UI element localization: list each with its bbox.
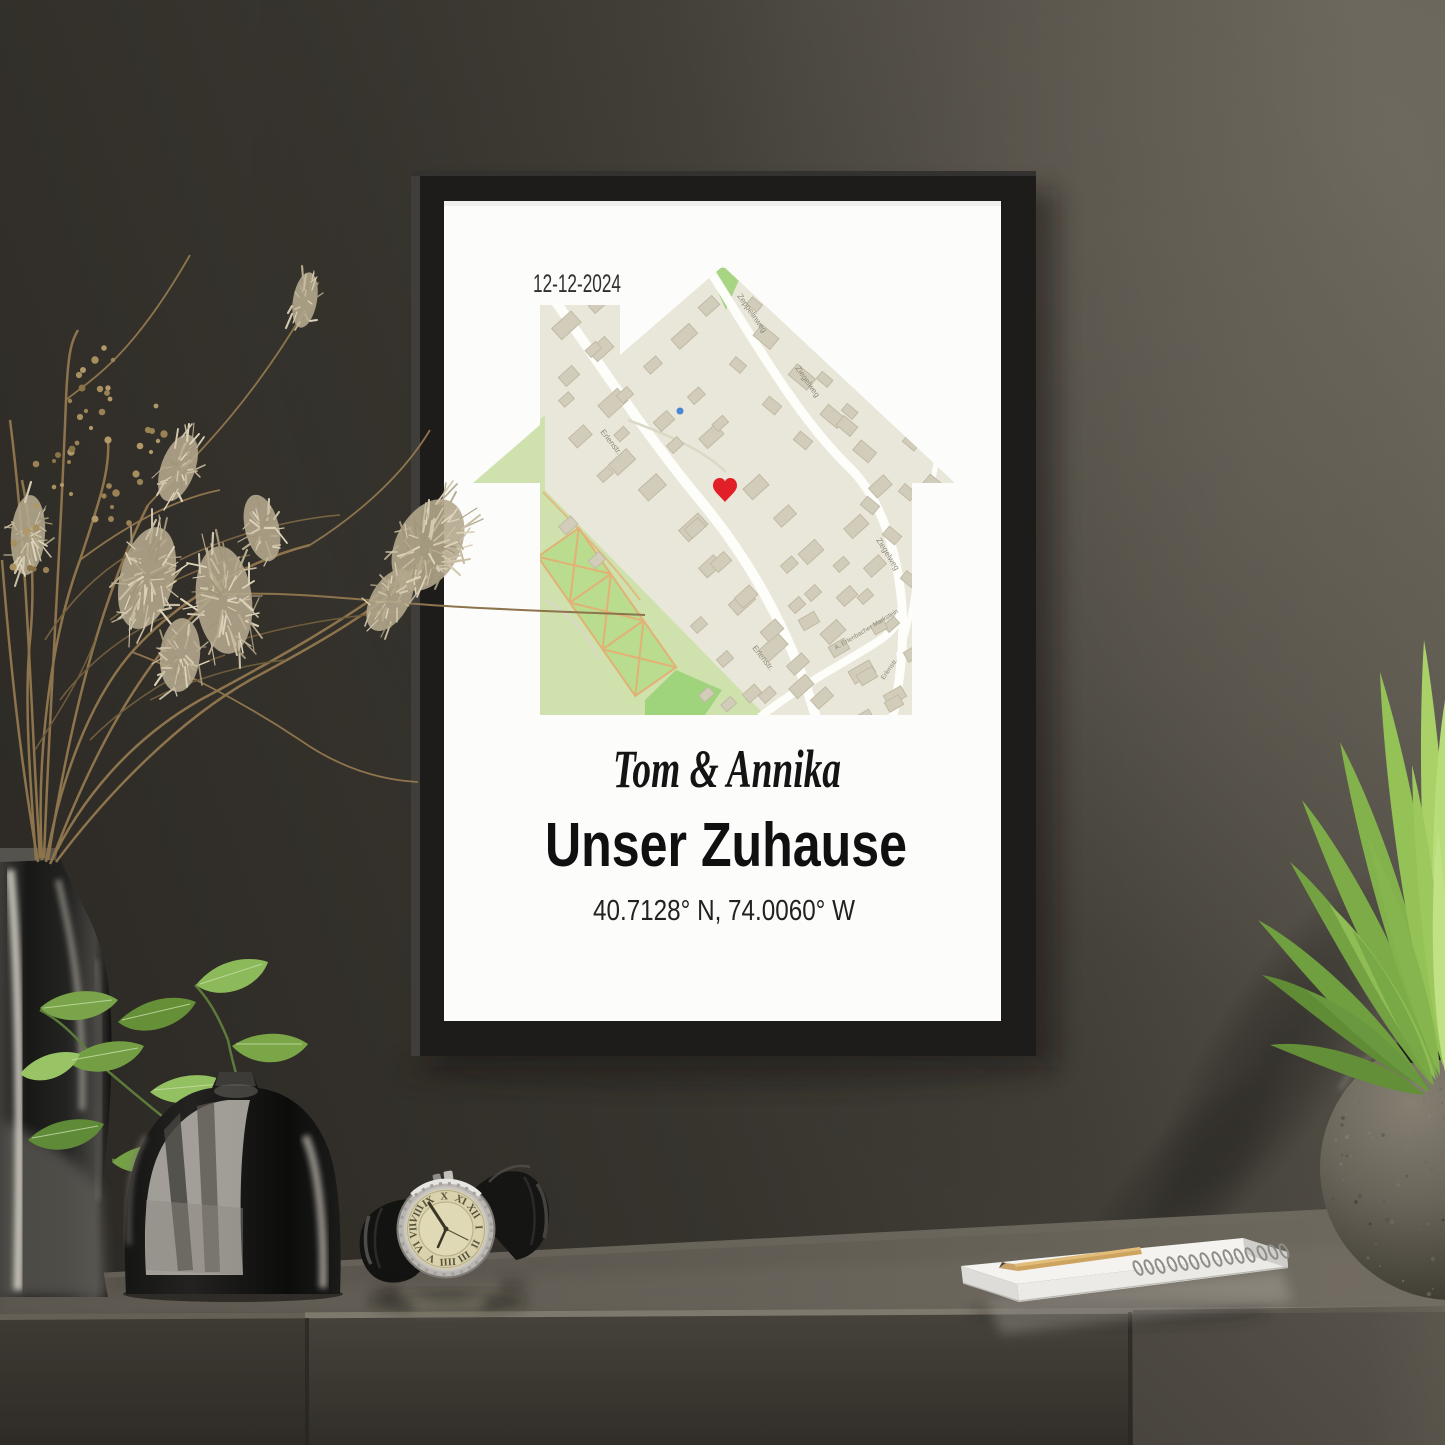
svg-text:Unser Zuhause: Unser Zuhause: [545, 811, 907, 880]
svg-text:12-12-2024: 12-12-2024: [533, 270, 621, 298]
svg-text:40.7128° N, 74.0060° W: 40.7128° N, 74.0060° W: [593, 895, 856, 927]
svg-text:IIII: IIII: [439, 1255, 456, 1267]
svg-text:I: I: [472, 1225, 483, 1230]
svg-text:Tom & Annika: Tom & Annika: [613, 739, 841, 799]
svg-text:X: X: [440, 1191, 449, 1202]
